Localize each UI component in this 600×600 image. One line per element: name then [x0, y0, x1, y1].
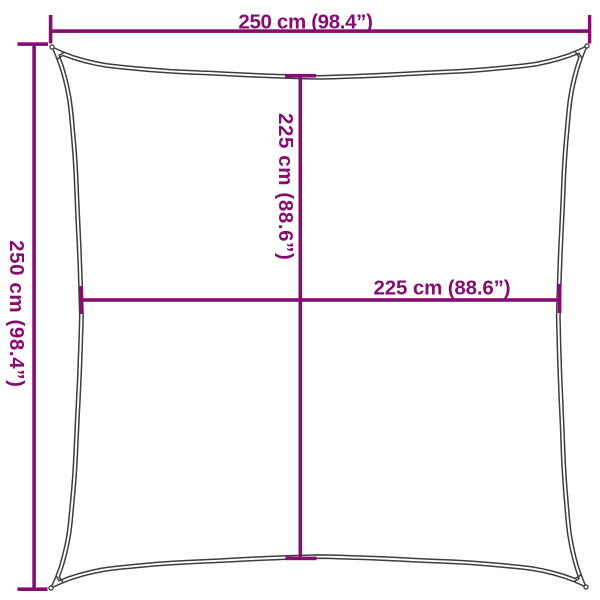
svg-text:225 cm (88.6”): 225 cm (88.6”): [374, 277, 511, 300]
svg-text:225 cm (88.6”): 225 cm (88.6”): [274, 113, 297, 260]
svg-text:250 cm (98.4”): 250 cm (98.4”): [5, 240, 28, 387]
svg-text:250 cm (98.4”): 250 cm (98.4”): [238, 10, 372, 33]
